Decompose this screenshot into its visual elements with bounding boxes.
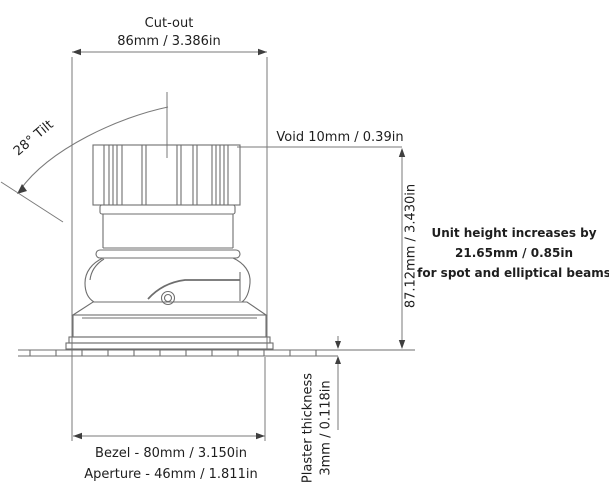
void-label: Void 10mm / 0.39in [276,130,403,145]
unit-height-label: 87.12mm / 3.430in [404,184,419,308]
unit-height-arrow-top [399,148,405,157]
downlight-dimension-diagram: Cut-out 86mm / 3.386in 28° Tilt Void 10m… [0,0,609,500]
plaster-arrow-down [335,341,341,349]
cutout-arrow-right [258,49,267,55]
adjustment-screw-inner [165,295,172,302]
aperture-label: Aperture - 46mm / 1.811in [84,467,257,482]
note-line-1: Unit height increases by [431,226,596,240]
cutout-arrow-left [72,49,81,55]
plaster-label-line-2: 3mm / 0.118in [319,380,334,475]
plaster-label-line-1: Plaster thickness [301,373,316,483]
bezel-arrow-right [256,433,265,439]
heatsink-fins [104,145,228,205]
plaster-arrow-up [335,356,341,364]
technical-drawing-canvas: Cut-out 86mm / 3.386in 28° Tilt Void 10m… [0,0,609,500]
body-cylinder [103,214,233,248]
ceiling-segment-ticks [30,350,316,356]
bezel-label: Bezel - 80mm / 3.150in [95,446,247,461]
fixture-drawing [18,145,415,356]
cutout-label: Cut-out [145,16,194,31]
tilt-arc-arrow [17,184,27,194]
tilt-label: 28° Tilt [11,117,57,159]
flange-plate-lower [66,343,273,349]
tilt-axis-line [1,182,63,222]
gimbal-bowl-left-inner [90,259,104,280]
dimension-lines [1,49,405,441]
note-line-3: for spot and elliptical beams [417,266,609,280]
gimbal-bowl-left [85,258,103,302]
cutout-value: 86mm / 3.386in [117,34,221,49]
heatsink-collar [100,205,235,214]
unit-height-arrow-bottom [399,340,405,349]
flange-plate-upper [69,337,270,343]
bezel-arrow-left [73,433,82,439]
body-ring [96,250,240,258]
note-line-2: 21.65mm / 0.85in [455,246,573,260]
